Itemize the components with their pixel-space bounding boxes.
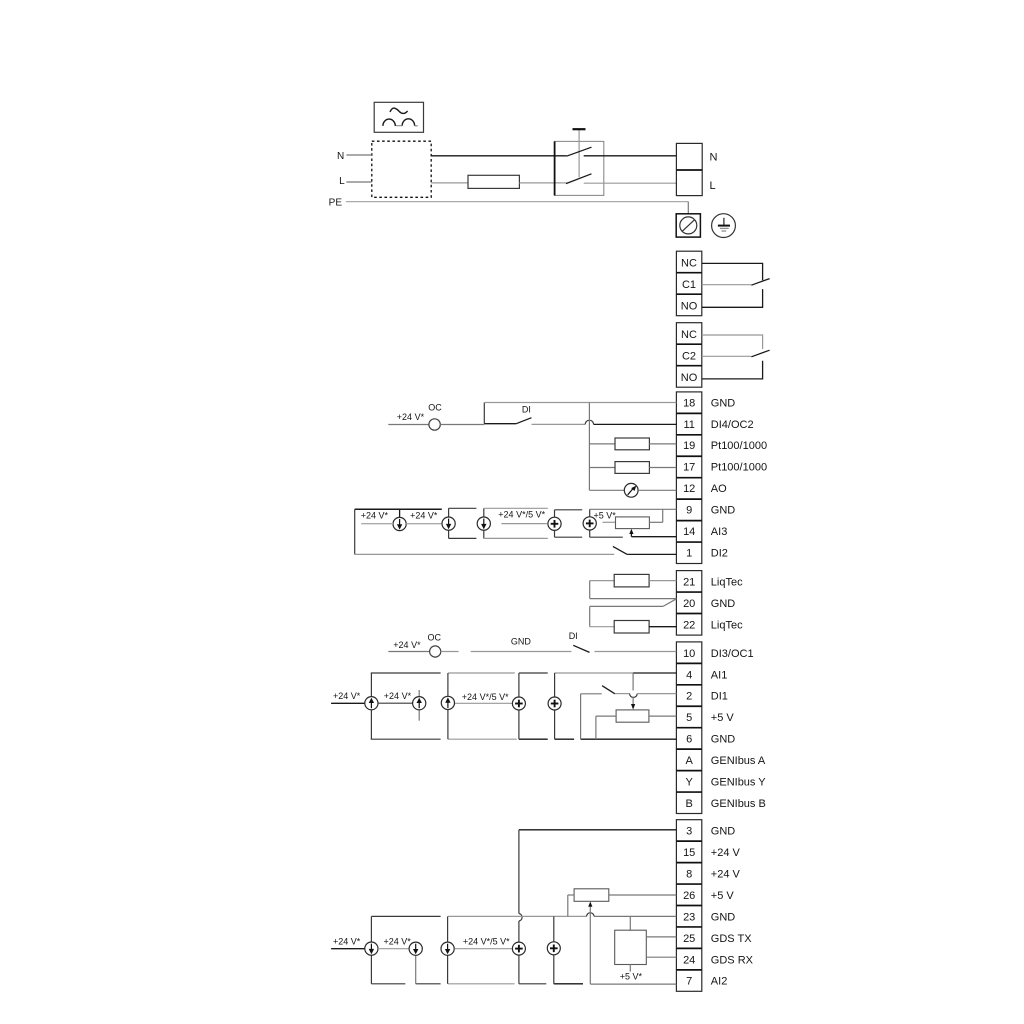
svg-text:1: 1 (686, 547, 692, 559)
svg-text:NC: NC (681, 329, 697, 341)
svg-text:GND: GND (711, 734, 736, 746)
svg-text:LiqTec: LiqTec (711, 619, 743, 631)
svg-text:14: 14 (683, 526, 695, 538)
svg-text:26: 26 (683, 890, 695, 902)
svg-text:+24 V*: +24 V* (333, 691, 361, 701)
svg-text:15: 15 (683, 847, 695, 859)
svg-text:GENIbus A: GENIbus A (711, 755, 766, 767)
svg-text:+5 V*: +5 V* (594, 511, 617, 521)
svg-text:GDS TX: GDS TX (711, 933, 752, 945)
svg-text:9: 9 (686, 505, 692, 517)
svg-text:B: B (686, 798, 693, 810)
svg-text:3: 3 (686, 826, 692, 838)
svg-text:NO: NO (681, 372, 698, 384)
svg-text:+24 V*: +24 V* (384, 936, 412, 946)
svg-text:GND: GND (511, 637, 532, 647)
svg-text:L: L (710, 180, 716, 192)
svg-text:+5 V*: +5 V* (620, 971, 643, 981)
svg-text:+24 V: +24 V (711, 847, 741, 859)
svg-text:AI1: AI1 (711, 669, 728, 681)
svg-text:5: 5 (686, 712, 692, 724)
svg-text:DI: DI (569, 631, 578, 641)
svg-text:+24 V*/5 V*: +24 V*/5 V* (462, 692, 509, 702)
svg-text:LiqTec: LiqTec (711, 577, 743, 589)
svg-text:GND: GND (711, 826, 736, 838)
svg-text:OC: OC (428, 633, 442, 643)
svg-text:12: 12 (683, 483, 695, 495)
svg-text:C1: C1 (682, 279, 696, 291)
svg-text:+24 V*: +24 V* (361, 510, 389, 520)
svg-text:22: 22 (683, 619, 695, 631)
svg-text:2: 2 (686, 691, 692, 703)
svg-text:8: 8 (686, 869, 692, 881)
svg-text:GND: GND (711, 505, 736, 517)
svg-text:DI4/OC2: DI4/OC2 (711, 419, 754, 431)
svg-text:+24 V: +24 V (711, 869, 741, 881)
svg-text:N: N (337, 151, 344, 162)
svg-text:+5 V: +5 V (711, 890, 735, 902)
svg-text:+24 V*/5 V*: +24 V*/5 V* (463, 937, 510, 947)
svg-text:GENIbus Y: GENIbus Y (711, 777, 766, 789)
svg-text:A: A (686, 755, 694, 767)
svg-text:DI3/OC1: DI3/OC1 (711, 648, 754, 660)
svg-text:OC: OC (428, 403, 442, 413)
svg-text:N: N (710, 152, 718, 164)
svg-text:11: 11 (683, 419, 694, 431)
svg-text:Y: Y (686, 777, 694, 789)
svg-text:4: 4 (686, 669, 692, 681)
svg-text:AI3: AI3 (711, 526, 728, 538)
svg-text:GND: GND (711, 598, 736, 610)
svg-text:PE: PE (329, 197, 343, 208)
svg-text:10: 10 (683, 648, 695, 660)
svg-text:+24 V*: +24 V* (393, 640, 421, 650)
svg-text:GND: GND (711, 911, 736, 923)
svg-text:25: 25 (683, 933, 695, 945)
svg-text:Pt100/1000: Pt100/1000 (711, 462, 767, 474)
svg-text:17: 17 (683, 462, 695, 474)
svg-text:L: L (339, 176, 345, 187)
svg-text:GDS RX: GDS RX (711, 954, 754, 966)
svg-text:+24 V*: +24 V* (397, 412, 425, 422)
svg-text:18: 18 (683, 397, 695, 409)
svg-text:23: 23 (683, 911, 695, 923)
svg-text:GENIbus B: GENIbus B (711, 798, 766, 810)
svg-text:6: 6 (686, 734, 692, 746)
svg-text:+24 V*: +24 V* (384, 691, 412, 701)
svg-text:+24 V*/5 V*: +24 V*/5 V* (498, 510, 545, 520)
svg-text:DI2: DI2 (711, 547, 728, 559)
svg-text:19: 19 (683, 440, 695, 452)
svg-text:24: 24 (683, 954, 695, 966)
svg-text:NO: NO (681, 301, 698, 313)
svg-text:7: 7 (686, 976, 692, 988)
svg-text:+5 V: +5 V (711, 712, 735, 724)
svg-text:+24 V*: +24 V* (410, 510, 438, 520)
svg-text:AO: AO (711, 483, 727, 495)
svg-text:+24 V*: +24 V* (333, 936, 361, 946)
svg-text:GND: GND (711, 397, 736, 409)
svg-text:NC: NC (681, 258, 697, 270)
svg-text:21: 21 (683, 577, 695, 589)
svg-text:Pt100/1000: Pt100/1000 (711, 440, 767, 452)
svg-text:DI1: DI1 (711, 691, 728, 703)
svg-text:C2: C2 (682, 351, 696, 363)
svg-text:20: 20 (683, 598, 695, 610)
svg-text:DI: DI (522, 404, 531, 414)
svg-text:AI2: AI2 (711, 976, 728, 988)
